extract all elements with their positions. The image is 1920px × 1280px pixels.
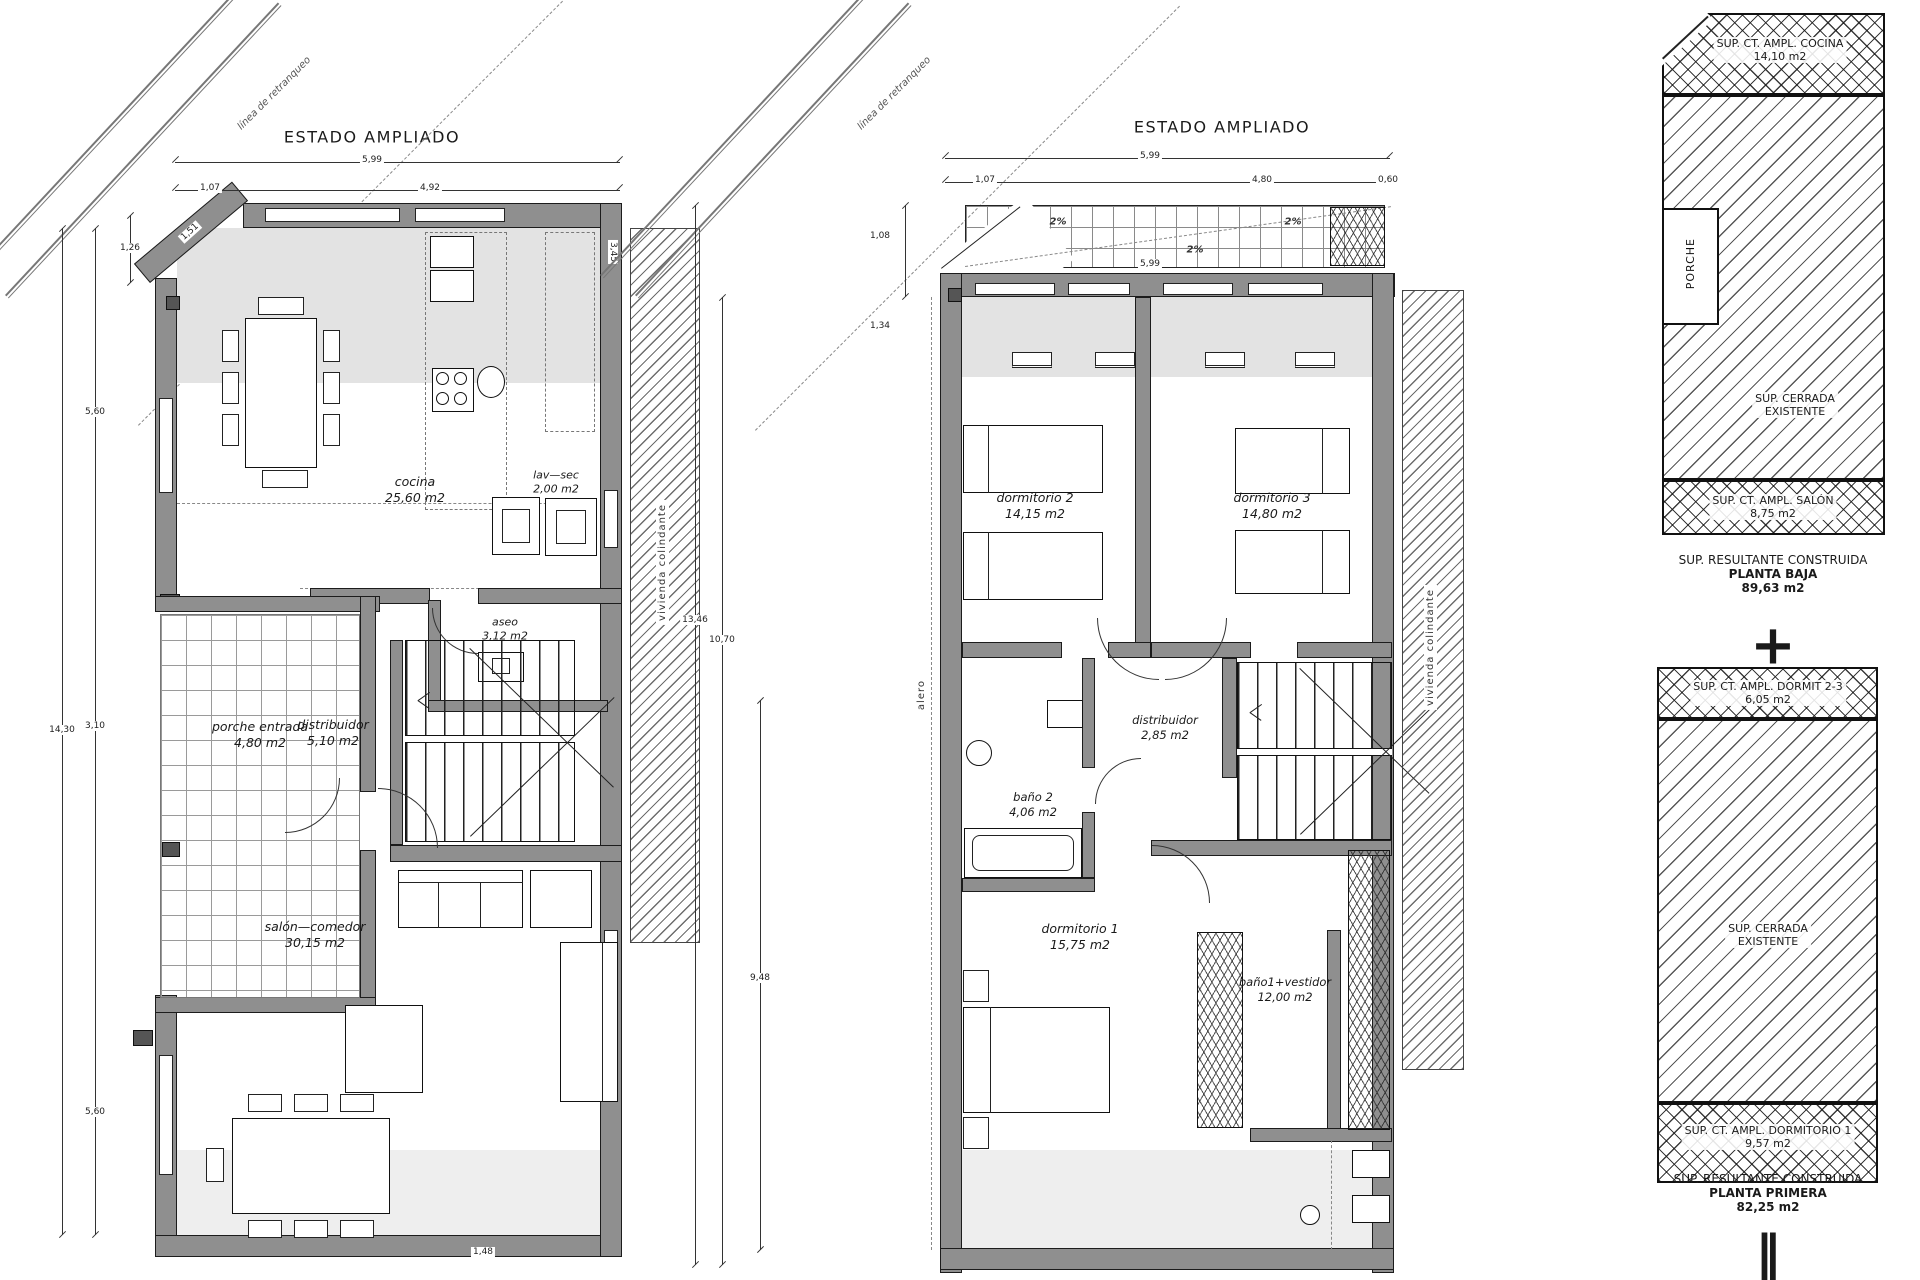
bed <box>963 425 1103 493</box>
bath2-wall <box>1082 812 1095 878</box>
floorplan-sheet: ESTADO AMPLIADO línea de retranqueo <box>0 0 1920 1280</box>
dim-line <box>695 205 696 1265</box>
property-boundary-line <box>635 2 911 298</box>
bed <box>1235 428 1350 494</box>
terrace-equipment <box>1330 207 1385 266</box>
window <box>975 283 1055 295</box>
nightstand <box>963 1117 989 1149</box>
bed <box>1235 530 1350 594</box>
dim-label: 10,70 <box>707 635 737 645</box>
hall-wall <box>1297 642 1392 658</box>
room-label-bano2: baño 2 4,06 m2 <box>1009 790 1057 820</box>
window <box>1248 283 1323 295</box>
plan-first-title: ESTADO AMPLIADO <box>1134 118 1310 137</box>
door-arc <box>1165 618 1227 680</box>
radiator <box>1295 352 1335 368</box>
shower-drain <box>1300 1205 1320 1225</box>
wardrobe-wall <box>1327 930 1341 1135</box>
dim-line <box>945 158 1390 159</box>
bed <box>963 532 1103 600</box>
bed-pillow-line <box>1322 428 1323 494</box>
bottom-floor-shade <box>962 1150 1372 1248</box>
stair-wall <box>1222 658 1237 778</box>
room-label-bano1: baño1+vestidor 12,00 m2 <box>1239 975 1331 1005</box>
bath1-wall <box>1250 1128 1392 1142</box>
eave-label: alero <box>916 680 927 710</box>
bed-pillow-line <box>988 532 989 600</box>
dim-line <box>905 205 906 297</box>
slope-label: 2% <box>1285 217 1302 228</box>
hall-wall <box>962 642 1062 658</box>
wardrobe <box>1197 932 1243 1128</box>
stair-rail <box>1237 748 1392 756</box>
bath2-wall <box>1082 658 1095 768</box>
toilet <box>1352 1150 1390 1178</box>
ampl-salon-label: SUP. CT. AMPL. SALÓN 8,75 m2 <box>1709 494 1836 520</box>
cerrada-existente-block-2 <box>1657 719 1878 1103</box>
bed-pillow-line <box>990 1007 991 1113</box>
door-arc <box>1095 758 1141 804</box>
room-label-distribuidor2: distribuidor 2,85 m2 <box>1132 713 1198 743</box>
dim-line <box>945 182 1390 183</box>
ampl-cocina-label: SUP. CT. AMPL. COCINA 14,10 m2 <box>1714 37 1847 63</box>
bath2-bottom-wall <box>962 878 1095 892</box>
dim-label: 0,60 <box>1376 175 1400 185</box>
property-boundary-line <box>600 0 876 278</box>
porch-label: PORCHE <box>1684 238 1697 289</box>
eave-line <box>931 297 932 1250</box>
setback-label: línea de retranqueo <box>856 55 934 133</box>
room-label-dorm2: dormitorio 2 14,15 m2 <box>996 490 1073 523</box>
dim-label: 9,48 <box>748 973 772 983</box>
equals-operator: ‖ <box>1755 1225 1781 1280</box>
bed-pillow-line <box>988 425 989 493</box>
dim-label: 4,80 <box>1250 175 1274 185</box>
door-arc <box>1097 618 1159 680</box>
wardrobe <box>1348 850 1390 1130</box>
ampl-dormit23-label: SUP. CT. AMPL. DORMIT 2-3 6,05 m2 <box>1690 680 1846 706</box>
window <box>1163 283 1233 295</box>
left-wall <box>940 273 962 1273</box>
room-label-dorm1: dormitorio 1 15,75 m2 <box>1041 921 1118 954</box>
radiator <box>1095 352 1135 368</box>
slope-label: 2% <box>1187 245 1204 256</box>
radiator <box>1012 352 1052 368</box>
room-label-dorm3: dormitorio 3 14,80 m2 <box>1233 490 1310 523</box>
bed-pillow-line <box>1322 530 1323 594</box>
dim-label: 1,08 <box>868 231 892 241</box>
column <box>948 288 962 302</box>
dim-label: 13,46 <box>680 615 710 625</box>
bathtub-inner <box>972 835 1074 871</box>
neighbor-dwelling-label: vivienda colindante <box>1424 585 1437 710</box>
radiator <box>1205 352 1245 368</box>
plan-first-floor: ESTADO AMPLIADO línea de retranqueo 2% 2… <box>0 0 1560 1280</box>
cerrada-existente-label: SUP. CERRADA EXISTENTE <box>1752 392 1838 418</box>
bidet <box>1352 1195 1390 1223</box>
cerrada-existente-label-2: SUP. CERRADA EXISTENTE <box>1725 922 1811 948</box>
toilet <box>1047 700 1083 728</box>
dim-label: 1,34 <box>868 321 892 331</box>
bottom-wall <box>940 1248 1394 1270</box>
bedroom-divider-wall <box>1135 297 1151 644</box>
ampl-dormitorio1-label: SUP. CT. AMPL. DORMITORIO 1 9,57 m2 <box>1682 1124 1855 1150</box>
nightstand <box>963 970 989 1002</box>
dim-label: 5,99 <box>1138 151 1162 161</box>
slope-label: 2% <box>1050 217 1067 228</box>
bed-double <box>963 1007 1110 1113</box>
washbasin <box>966 740 992 766</box>
dim-label: 5,99 <box>1138 259 1162 269</box>
window <box>1068 283 1130 295</box>
planta-primera-caption: SUP. RESULTANTE CONSTRUIDA PLANTA PRIMER… <box>1674 1172 1863 1214</box>
dim-line <box>722 297 723 1265</box>
planta-baja-caption: SUP. RESULTANTE CONSTRUIDA PLANTA BAJA 8… <box>1679 553 1868 595</box>
dim-label: 1,07 <box>973 175 997 185</box>
bath1-divider <box>1331 1140 1332 1250</box>
